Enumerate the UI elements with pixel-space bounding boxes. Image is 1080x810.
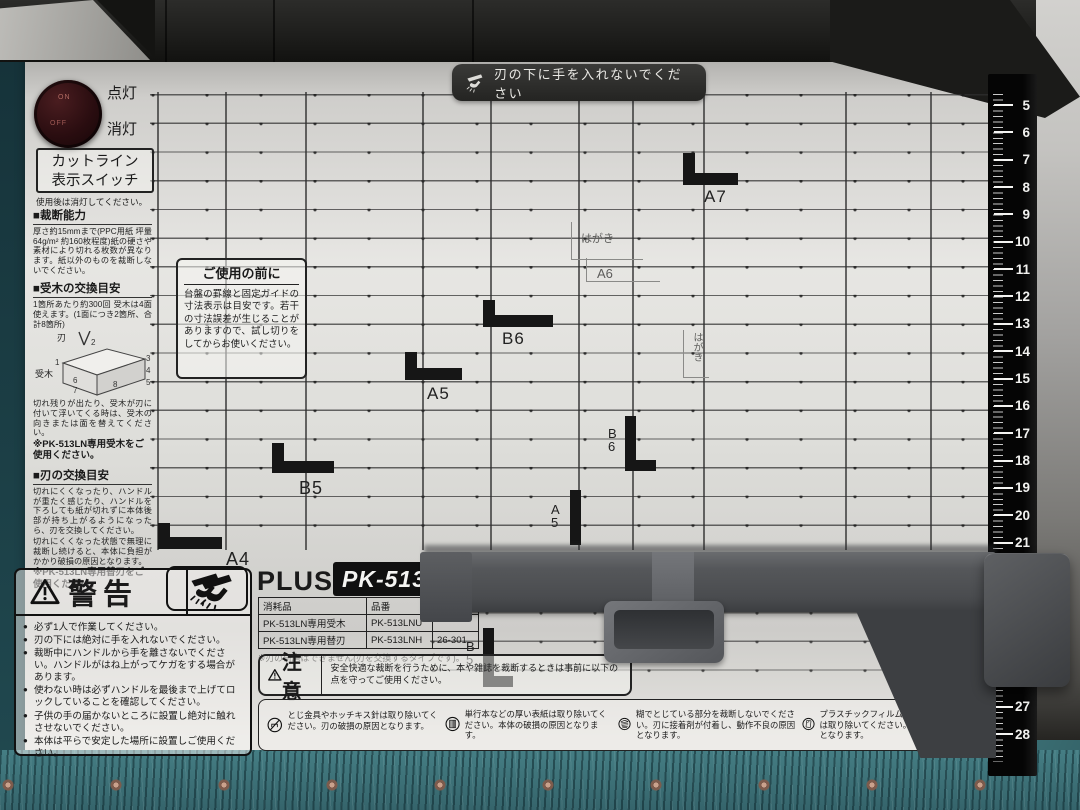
ruler-number-8: 8 bbox=[994, 180, 1030, 194]
ruler-number-10: 10 bbox=[994, 235, 1030, 249]
ruler-number-28: 28 bbox=[994, 727, 1030, 741]
fence-left-end bbox=[420, 552, 472, 622]
a5-label: A5 bbox=[427, 384, 450, 404]
svg-text:3: 3 bbox=[146, 354, 151, 363]
caution-item: 単行本などの厚い表紙は取り除いてください。本体の破損の原因となります。 bbox=[445, 709, 613, 741]
a6-label: A6 bbox=[597, 266, 613, 281]
glue-binding-icon bbox=[618, 709, 631, 739]
grid-vline bbox=[632, 92, 634, 550]
warning-item: 使わない時は必ずハンドルを最後まで上げてロックしていることを確認してください。 bbox=[23, 685, 243, 709]
before-use-box: ご使用の前に 台盤の罫線と固定ガイドの寸法表示は目安です。若干の寸法誤差が生じる… bbox=[176, 258, 307, 379]
blade-body2: 切れにくくなった状態で無理に裁断し続けると、本体に負担がかかり破損の原因となりま… bbox=[33, 537, 152, 566]
hagaki-corner-mark: はがき bbox=[571, 222, 643, 260]
cell: PK-513LN専用受木 bbox=[259, 615, 367, 632]
blade-hand-icon bbox=[189, 571, 225, 607]
ukigi-title: ■受木の交換目安 bbox=[33, 280, 152, 298]
capacity-section: ■裁断能力 厚さ約15mmまで(PPC用紙 坪量64g/m² 約160枚程度)紙… bbox=[33, 207, 152, 275]
ukigi-note: ※PK-513LN専用受木をご使用ください。 bbox=[33, 439, 152, 462]
caution-intro: 安全快適な裁断を行うために、本や雑誌を裁断するときは事前に以下の点を守ってご使用… bbox=[322, 661, 630, 689]
warning-item: 刃の下には絶対に手を入れないでください。 bbox=[23, 635, 243, 647]
ruler-number-5: 5 bbox=[994, 98, 1030, 112]
warning-item: 裁断中にハンドルから手を離さないでください。ハンドルがはね上がってケガをする場合… bbox=[23, 648, 243, 684]
a4-corner-mark bbox=[158, 523, 222, 549]
b6-vertical-corner-mark bbox=[625, 416, 656, 471]
clamp-block[interactable] bbox=[984, 553, 1070, 687]
ukigi-body: 1箇所あたり約300回 受木は4面使えます。(1面につき2箇所、合計8箇所) bbox=[33, 300, 152, 329]
cell: 26-301 bbox=[433, 632, 479, 649]
switch-box-line1: カットライン bbox=[38, 152, 152, 172]
grid-vline bbox=[422, 92, 424, 550]
cell: PK-513LNH bbox=[367, 632, 433, 649]
paper-cutter-photo: 刃の下に手を入れないでください ON OFF 点灯 消灯 カットライン 表示スイ… bbox=[0, 0, 1080, 810]
housing-seam bbox=[472, 0, 474, 62]
svg-text:1: 1 bbox=[55, 358, 60, 367]
svg-text:8: 8 bbox=[113, 380, 118, 389]
hagaki-vertical-label: はがき bbox=[689, 332, 704, 362]
ruler-number-19: 19 bbox=[994, 481, 1030, 495]
capacity-body: 厚さ約15mmまで(PPC用紙 坪量64g/m² 約160枚程度)紙の硬さや素材… bbox=[33, 227, 152, 275]
caution-item-text: とじ金具やホッチキス針は取り除いてください。刃の破損の原因となります。 bbox=[288, 710, 439, 732]
caution-triangle-icon bbox=[268, 666, 282, 684]
banner-text: 刃の下に手を入れないでください bbox=[494, 64, 692, 102]
ruler-number-13: 13 bbox=[994, 317, 1030, 331]
warning-item: 必ず1人で作業してください。 bbox=[23, 622, 243, 634]
grid-vline bbox=[157, 92, 159, 550]
switch-box-line2: 表示スイッチ bbox=[38, 172, 152, 191]
a7-label: A7 bbox=[704, 187, 727, 207]
b6-corner-mark bbox=[483, 300, 553, 327]
a5-vertical-label: A5 bbox=[551, 503, 563, 529]
hagaki-vertical-mark: はがき bbox=[683, 330, 709, 378]
ruler-number-17: 17 bbox=[994, 426, 1030, 440]
header-consumable: 消耗品 bbox=[259, 598, 367, 615]
b5-corner-mark bbox=[272, 443, 334, 473]
caution-title-cell: 注意 bbox=[260, 656, 322, 694]
warning-list: 必ず1人で作業してください。 刃の下には絶対に手を入れないでください。 裁断中に… bbox=[16, 616, 250, 765]
svg-text:7: 7 bbox=[73, 386, 78, 395]
grid-vline bbox=[578, 92, 580, 550]
ruler-number-11: 11 bbox=[994, 262, 1030, 276]
blade-title: ■刃の交換目安 bbox=[33, 467, 152, 485]
cutline-power-switch[interactable]: ON OFF bbox=[34, 80, 102, 148]
blade-body: 切れにくくなったり、ハンドルが重たく感じたり、ハンドルを下ろしても紙が切れずに本… bbox=[33, 487, 152, 535]
svg-text:刃: 刃 bbox=[57, 333, 66, 343]
caution-item-text: 糊でとじている部分を裁断しないでください。刃に接着剤が付着し、動作不良の原因とな… bbox=[636, 709, 795, 741]
ruler-number-7: 7 bbox=[994, 153, 1030, 167]
brand-logo: PLUS bbox=[257, 566, 333, 597]
warning-item: 子供の手の届かないところに設置し絶対に触れさせないでください。 bbox=[23, 711, 243, 735]
lamp-off-label: 消灯 bbox=[107, 118, 137, 139]
a5-corner-mark bbox=[405, 352, 462, 380]
housing-seam bbox=[273, 0, 275, 62]
svg-text:6: 6 bbox=[73, 376, 78, 385]
ruler-number-16: 16 bbox=[994, 399, 1030, 413]
fence-handle-recess bbox=[614, 610, 714, 649]
blade-hand-icon bbox=[466, 72, 486, 94]
a7-corner-mark bbox=[683, 153, 738, 185]
left-info-column: ■裁断能力 厚さ約15mmまで(PPC用紙 坪量64g/m² 約160枚程度)紙… bbox=[33, 207, 152, 590]
warning-item: 本体は平らで安定した場所に設置しご使用ください。 bbox=[23, 736, 243, 760]
caution-title: 注意 bbox=[282, 646, 314, 704]
b6-vertical-label: B6 bbox=[608, 427, 620, 453]
svg-text:2: 2 bbox=[91, 338, 96, 347]
caution-item: 糊でとじている部分を裁断しないでください。刃に接着剤が付着し、動作不良の原因とな… bbox=[618, 709, 795, 741]
ruler-number-9: 9 bbox=[994, 207, 1030, 221]
ukigi-section: ■受木の交換目安 1箇所あたり約300回 受木は4面使えます。(1面につき2箇所… bbox=[33, 280, 152, 461]
ruler-number-14: 14 bbox=[994, 344, 1030, 358]
thick-cover-book-icon bbox=[445, 709, 460, 739]
no-staples-icon bbox=[267, 710, 283, 740]
blade-warning-banner: 刃の下に手を入れないでください bbox=[452, 64, 706, 101]
hagaki-label: はがき bbox=[581, 230, 614, 246]
fence-handle[interactable] bbox=[604, 601, 724, 663]
b6-label: B6 bbox=[502, 329, 525, 349]
housing-seam bbox=[165, 0, 167, 62]
plastic-film-icon bbox=[802, 709, 815, 739]
ruler-number-18: 18 bbox=[994, 454, 1030, 468]
ruler-number-20: 20 bbox=[994, 508, 1030, 522]
grid-vline bbox=[845, 92, 847, 550]
capacity-title: ■裁断能力 bbox=[33, 207, 152, 225]
ruler-number-6: 6 bbox=[994, 125, 1030, 139]
before-use-body: 台盤の罫線と固定ガイドの寸法表示は目安です。若干の寸法誤差が生じることがあります… bbox=[184, 288, 299, 350]
warning-triangle-icon bbox=[30, 578, 60, 606]
ruler-number-12: 12 bbox=[994, 289, 1030, 303]
svg-text:5: 5 bbox=[146, 378, 151, 387]
before-use-title: ご使用の前に bbox=[184, 263, 299, 285]
ukigi-body2: 切れ残りが出たり、受木が刃に付いて浮いてくる時は、受木の向きまたは面を替えてくだ… bbox=[33, 399, 152, 438]
caution-item: とじ金具やホッチキス針は取り除いてください。刃の破損の原因となります。 bbox=[267, 710, 439, 740]
ruler-number-21: 21 bbox=[994, 536, 1030, 550]
svg-text:4: 4 bbox=[146, 366, 151, 375]
ruler-number-15: 15 bbox=[994, 372, 1030, 386]
b5-label: B5 bbox=[299, 478, 323, 499]
switch-off-label: OFF bbox=[50, 120, 67, 127]
lamp-on-label: 点灯 bbox=[107, 82, 137, 103]
a5-vertical-bar-mark bbox=[570, 490, 581, 545]
caution-header-box: 注意 安全快適な裁断を行うために、本や雑誌を裁断するときは事前に以下の点を守って… bbox=[258, 654, 632, 696]
svg-text:受木: 受木 bbox=[35, 368, 53, 379]
cutline-switch-label-box: カットライン 表示スイッチ bbox=[36, 148, 154, 193]
grid-vline bbox=[930, 92, 932, 550]
fence-center-tab bbox=[652, 552, 694, 608]
ruler-number-27: 27 bbox=[994, 700, 1030, 714]
warning-title: 警告 bbox=[68, 571, 138, 613]
ukigi-diagram: 刃 2 1 3 4 5 6 7 8 受木 bbox=[33, 331, 152, 397]
caution-item-text: 単行本などの厚い表紙は取り除いてください。本体の破損の原因となります。 bbox=[465, 709, 612, 741]
switch-on-label: ON bbox=[58, 94, 71, 101]
caution-items-box: とじ金具やホッチキス針は取り除いてください。刃の破損の原因となります。 単行本な… bbox=[258, 699, 980, 751]
blade-hand-badge bbox=[166, 566, 248, 611]
